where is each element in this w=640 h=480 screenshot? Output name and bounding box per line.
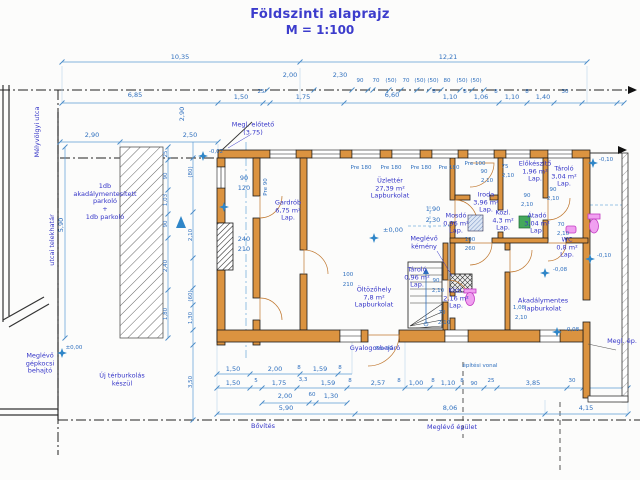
dimension-label: 2,10 <box>547 196 559 202</box>
annotation-label: Mélyvölgyi utca <box>34 107 42 158</box>
dimension-label: 1,59 <box>321 380 335 388</box>
dimension-label: 10,35 <box>171 54 190 62</box>
dimension-label: 8 <box>463 89 467 95</box>
dimension-label: 100 <box>465 237 476 243</box>
dimension-label: 70 <box>558 222 565 228</box>
dimension-label: 90 <box>471 381 478 387</box>
dimension-label: 2,10 <box>502 173 514 179</box>
dimension-label: 80 <box>444 78 451 84</box>
dimension-label: 1,06 <box>474 94 488 102</box>
dimension-label: 8 <box>338 365 342 371</box>
dimension-label: 2,57 <box>371 380 385 388</box>
dimension-label: (50) <box>470 78 481 84</box>
room-label: Akadálymentes lapburkolat <box>518 297 568 312</box>
room-label: Mosdó 0,96 m² Lap. <box>443 213 468 236</box>
dimension-label: (60) <box>188 290 194 301</box>
annotation-label: utcai telekhatár <box>49 214 57 266</box>
dimension-label: 5,90 <box>279 405 293 413</box>
dimension-label: 6,60 <box>385 92 399 100</box>
dimension-label: 1,80 <box>163 308 169 320</box>
dimension-label: 100 <box>343 272 354 278</box>
dimension-label: 1,08 <box>513 305 525 311</box>
dimension-label: 2,10 <box>521 202 533 208</box>
dimension-label: 240 <box>238 236 250 244</box>
annotation-label: Bővítés <box>251 423 275 431</box>
dimension-label: 90 <box>240 175 248 183</box>
dimension-label: Pre 180 <box>439 165 460 171</box>
annotation-label: Meglévő kémény <box>410 235 437 250</box>
dimension-label: -0,08 <box>553 267 567 273</box>
dimension-label: 8 <box>348 378 352 384</box>
dimension-label: 75 <box>502 164 509 170</box>
dimension-label: ±0,00 <box>383 227 403 235</box>
dimension-label: 30 <box>569 378 576 384</box>
dimension-label: -0,10 <box>599 157 613 163</box>
dimension-label: 70 <box>403 78 410 84</box>
dimension-label: Pre 90 <box>375 346 393 352</box>
room-label: WC 0,8 m² Lap. <box>556 237 577 260</box>
dimension-label: 1,10 <box>443 94 457 102</box>
annotation-label: Új térburkolás készül <box>99 372 144 387</box>
dimension-label: 2,00 <box>278 393 292 401</box>
dimension-label: 8 <box>297 365 301 371</box>
dimension-label: 2,00 <box>283 72 297 80</box>
dimension-label: 2,10 <box>188 229 194 241</box>
dimension-label: Pre 180 <box>411 165 432 171</box>
dimension-label: 1,75 <box>272 380 286 388</box>
dimension-label: 1,75 <box>296 94 310 102</box>
room-label: Gardrób 6,75 m² Lap. <box>275 200 301 223</box>
dimension-label: 2,10 <box>432 288 444 294</box>
dimension-label: 90 <box>481 169 488 175</box>
dimension-label: (50) <box>385 78 396 84</box>
dimension-label: (50) <box>414 78 425 84</box>
dimension-label: Pre 180 <box>351 165 372 171</box>
dimension-label: Pre 100 <box>465 161 486 167</box>
room-label: Közl. 4,3 m² Lap. <box>492 210 513 233</box>
dimension-label: 1,10 <box>441 380 455 388</box>
dimension-label: 25 <box>488 378 495 384</box>
room-label: Iroda 3,96 m² Lap. <box>473 192 498 215</box>
dimension-label: 260 <box>465 246 476 252</box>
dimension-label: 90 <box>357 78 364 84</box>
dimension-label: 1,40 <box>536 94 550 102</box>
dimension-label: -0,02 <box>209 149 223 155</box>
annotation-label: Gyalogosbejáró <box>350 345 401 353</box>
dimension-label: 25 <box>163 151 169 158</box>
dimension-label: 2,90 <box>179 107 187 121</box>
annotation-label: Megl. ép. <box>607 338 637 346</box>
dimension-label: 12,21 <box>439 54 458 62</box>
dimension-label: 8 <box>397 378 401 384</box>
dimension-label: 2,30 <box>426 217 440 225</box>
room-label: Közl. 2,16 m² Lap. <box>443 288 468 311</box>
room-label: Tároló 0,96 m² Lap. <box>404 267 429 290</box>
dimension-label: 2,00 <box>268 366 282 374</box>
dimension-label: Pre 90 <box>263 178 269 196</box>
dimension-label: 1,03 <box>163 194 169 206</box>
dimension-label: (50) <box>456 78 467 84</box>
dimension-label: 8 <box>432 89 436 95</box>
annotation-label: 1db akadálymentesített parkoló + 1db par… <box>73 183 136 221</box>
dimension-label: -0,10 <box>597 253 611 259</box>
dimension-label: 2,10 <box>438 320 450 326</box>
dimension-label: 1,00 <box>409 380 423 388</box>
annotation-label: Meglévő épület <box>427 424 477 432</box>
dimension-label: 2,10 <box>515 315 527 321</box>
dimension-label: 90 <box>163 221 169 228</box>
dimension-label: 2,10 <box>557 231 569 237</box>
dimension-label: 8 <box>460 378 464 384</box>
annotation-label: Megl. előtető (3,75) <box>232 121 275 136</box>
dimension-label: 3,85 <box>526 380 540 388</box>
dimension-label: 30 <box>562 89 569 95</box>
dimension-label: építési vonal <box>462 363 497 369</box>
dimension-label: (50) <box>427 78 438 84</box>
room-label: Tároló 3,04 m² Lap. <box>551 166 576 189</box>
dimension-label: 60 <box>309 392 316 398</box>
dimension-label: 1,50 <box>226 366 240 374</box>
dimension-label: 90 <box>550 187 557 193</box>
dimension-label: 210 <box>238 246 250 254</box>
dimension-label: 3,50 <box>188 376 194 388</box>
dimension-label: 1,30 <box>324 393 338 401</box>
dimension-label: 5,90 <box>58 218 66 232</box>
dimension-label: 8,06 <box>443 405 457 413</box>
dimension-label: 1,59 <box>313 366 327 374</box>
dimension-label: 1,30 <box>188 312 194 324</box>
dimension-label: 90 <box>163 173 169 180</box>
dimension-label: 5 <box>254 378 258 384</box>
dimension-label: 8 <box>525 89 529 95</box>
dimension-label: Pre 180 <box>381 165 402 171</box>
dimension-label: 120 <box>238 185 250 193</box>
dimension-label: 6,85 <box>128 92 142 100</box>
dimension-label: 70 <box>373 78 380 84</box>
dimension-label: 2,90 <box>85 132 99 140</box>
dimension-label: 3,3 <box>299 377 308 383</box>
dimension-label: 2,50 <box>183 132 197 140</box>
dimension-label: 1,10 <box>505 94 519 102</box>
room-label: Előkészítő 1,96 m² Lap. <box>519 161 552 184</box>
dimension-label: 210 <box>343 282 354 288</box>
dimension-label: (80) <box>188 166 194 177</box>
dimension-label: 2,30 <box>333 72 347 80</box>
room-label: Üzlettér 27,39 m² Lapburkolat <box>371 178 410 201</box>
room-label: Átadó 3,04 m² Lap. <box>524 213 549 236</box>
dimension-label: 1,90 <box>426 206 440 214</box>
dimension-label: ±0,00 <box>66 345 83 351</box>
dimension-label: 8 <box>431 378 435 384</box>
dimension-label: 25 <box>258 89 265 95</box>
drawing-labels-layer: 10,3512,212,002,309070(50)70(50)(50)80(5… <box>0 0 640 480</box>
dimension-label: 2,40 <box>163 260 169 272</box>
annotation-label: Meglévő gépkocsi behajtó <box>26 353 55 376</box>
dimension-label: 4,15 <box>579 405 593 413</box>
floor-plan-drawing: Földszinti alaprajz M = 1:100 10,3512,21… <box>0 0 640 480</box>
room-label: Öltözőhely 7,8 m² Lapburkolat <box>355 287 394 310</box>
dimension-label: 1,50 <box>234 94 248 102</box>
dimension-label: 2,10 <box>481 178 493 184</box>
dimension-label: 8 <box>494 89 498 95</box>
dimension-label: 90 <box>524 193 531 199</box>
dimension-label: -0,08 <box>565 327 579 333</box>
dimension-label: 90 <box>433 278 440 284</box>
dimension-label: 1,50 <box>226 380 240 388</box>
dimension-label: 70 <box>439 310 446 316</box>
